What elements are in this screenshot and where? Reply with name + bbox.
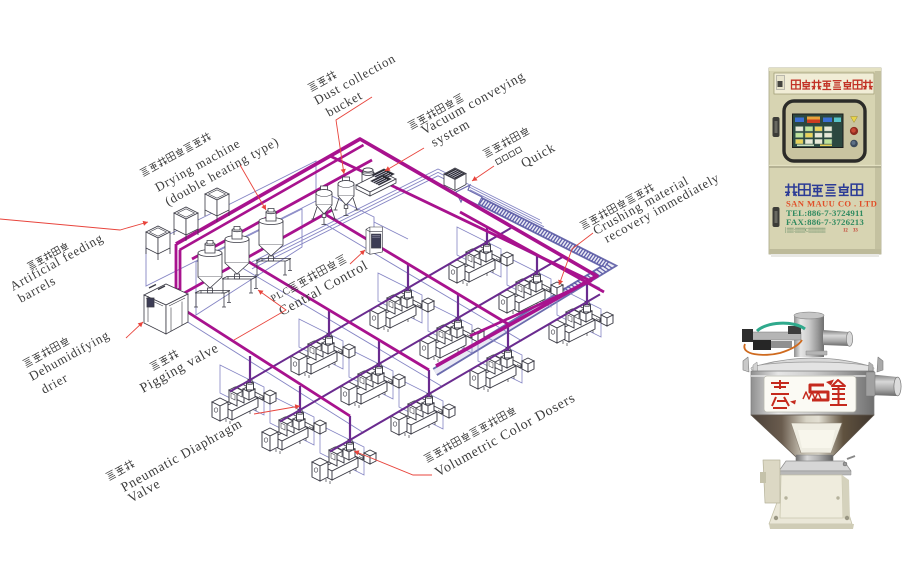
svg-text:12: 12 (843, 229, 848, 234)
svg-text:Volumetric Color Dosers: Volumetric Color Dosers (433, 391, 579, 481)
svg-text:Pneumatic Diaphragm: Pneumatic Diaphragm (118, 415, 244, 494)
svg-text:Quick: Quick (518, 140, 558, 171)
svg-text:Vacuum conveying: Vacuum conveying (418, 68, 527, 138)
svg-text:33: 33 (853, 229, 858, 234)
svg-text:SAN MAUU CO . LTD: SAN MAUU CO . LTD (786, 199, 877, 209)
svg-text:│▒▒:▒▒▒C▒▒▒▒▒: │▒▒:▒▒▒C▒▒▒▒▒ (784, 227, 827, 234)
svg-text:FAX:886-7-3726213: FAX:886-7-3726213 (786, 217, 864, 227)
svg-text:Pigging valve: Pigging valve (138, 341, 222, 397)
svg-text:Dehumidifying: Dehumidifying (26, 327, 112, 384)
svg-text:Central Control: Central Control (277, 258, 371, 319)
